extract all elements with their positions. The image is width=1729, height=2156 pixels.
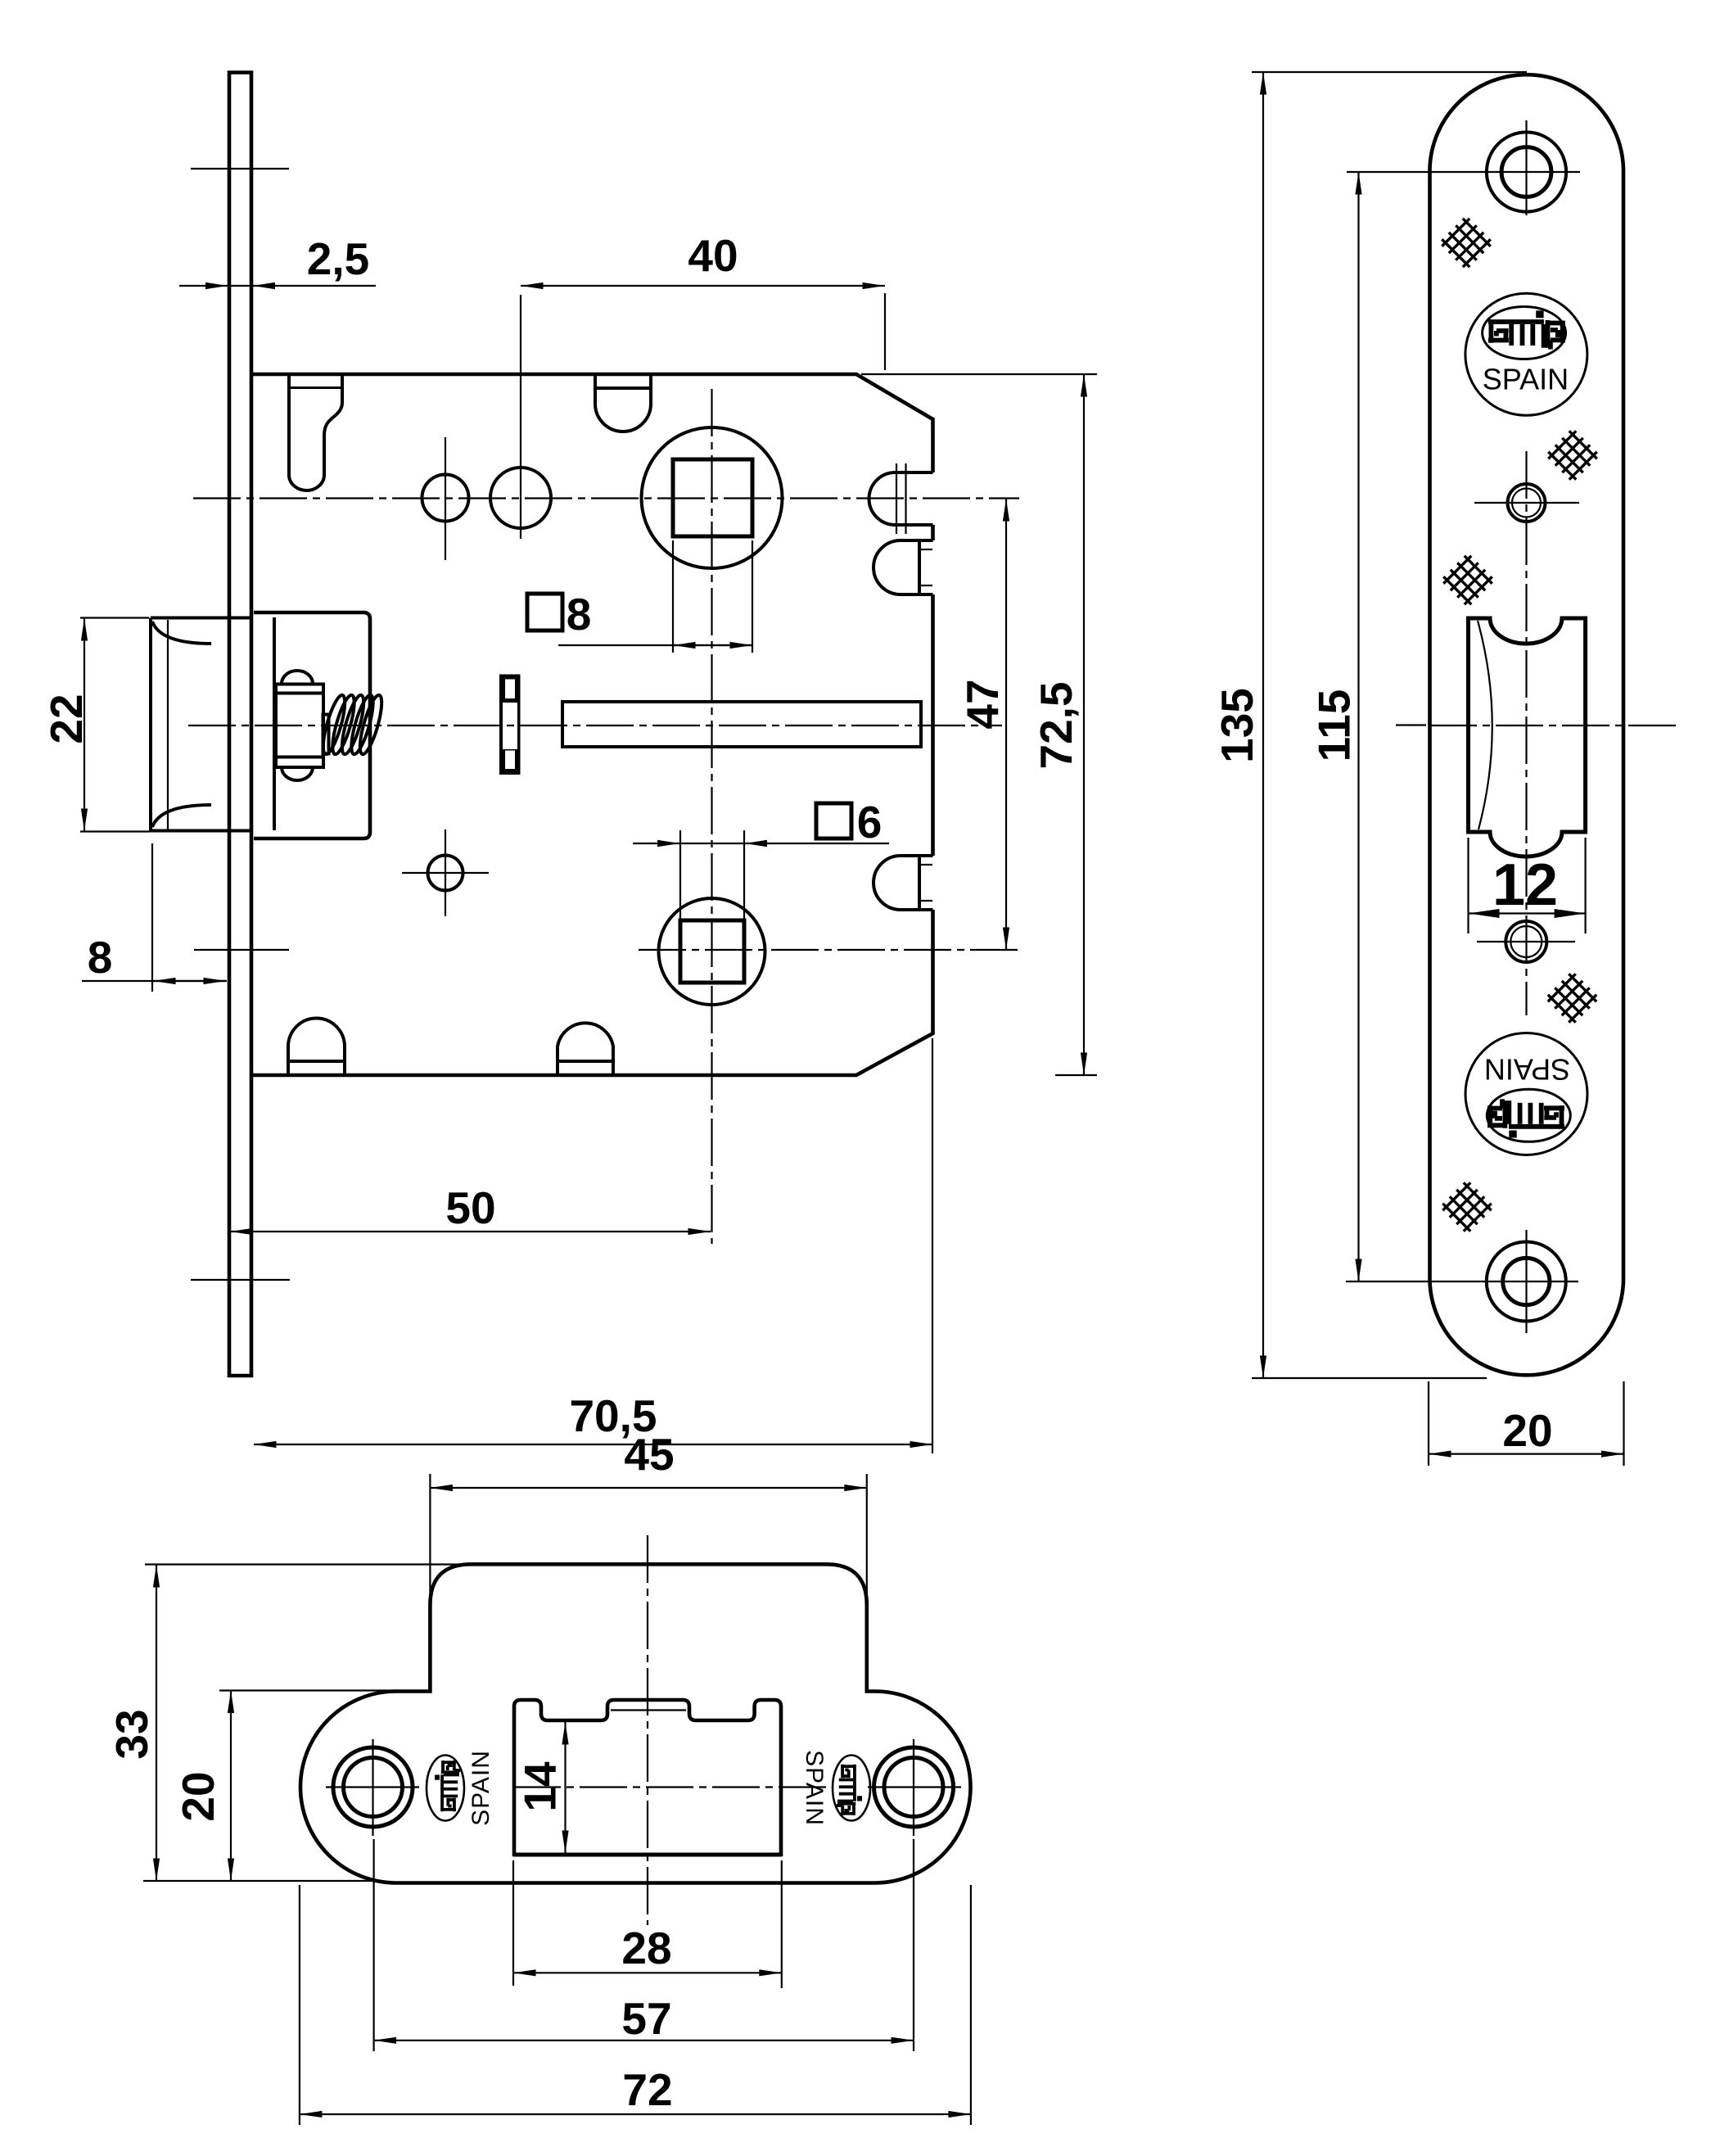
svg-text:12: 12	[1492, 852, 1558, 918]
svg-text:57: 57	[621, 1993, 671, 2044]
svg-text:28: 28	[621, 1923, 671, 1973]
svg-text:50: 50	[445, 1182, 495, 1233]
svg-text:20: 20	[173, 1771, 223, 1821]
svg-text:14: 14	[515, 1761, 566, 1812]
svg-text:45: 45	[624, 1429, 674, 1480]
svg-text:8: 8	[567, 589, 592, 640]
svg-text:20: 20	[1502, 1405, 1552, 1456]
svg-text:8: 8	[88, 932, 113, 983]
svg-text:40: 40	[688, 230, 738, 281]
svg-text:115: 115	[1309, 689, 1360, 762]
svg-text:6: 6	[857, 797, 883, 847]
svg-text:33: 33	[106, 1709, 157, 1759]
svg-text:SPAIN: SPAIN	[467, 1750, 494, 1826]
svg-text:SPAIN: SPAIN	[801, 1750, 828, 1826]
svg-text:72,5: 72,5	[1031, 681, 1081, 769]
svg-text:135: 135	[1212, 688, 1262, 763]
svg-text:2,5: 2,5	[307, 233, 369, 284]
svg-text:72: 72	[622, 2064, 672, 2115]
svg-text:47: 47	[957, 679, 1008, 729]
